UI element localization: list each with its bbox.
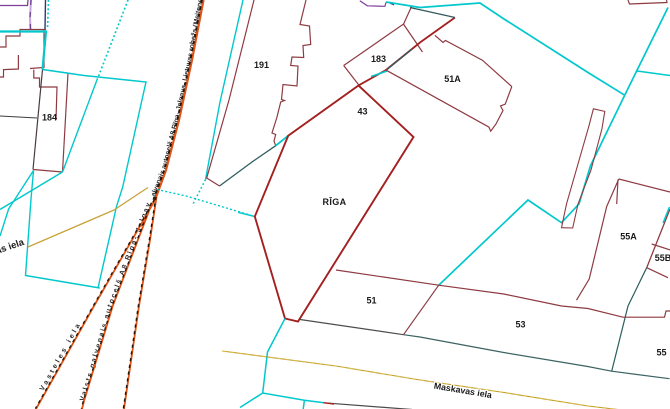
svg-text:191: 191	[254, 60, 269, 70]
svg-text:53: 53	[515, 320, 525, 330]
svg-text:43: 43	[357, 107, 367, 117]
svg-text:51: 51	[366, 296, 376, 306]
svg-text:55A: 55A	[620, 232, 637, 242]
svg-text:RĪGA: RĪGA	[322, 197, 346, 207]
svg-text:184: 184	[42, 113, 57, 123]
svg-text:51A: 51A	[444, 74, 461, 84]
svg-text:55B: 55B	[655, 253, 670, 263]
svg-text:183: 183	[371, 54, 386, 64]
svg-text:55: 55	[656, 348, 666, 358]
